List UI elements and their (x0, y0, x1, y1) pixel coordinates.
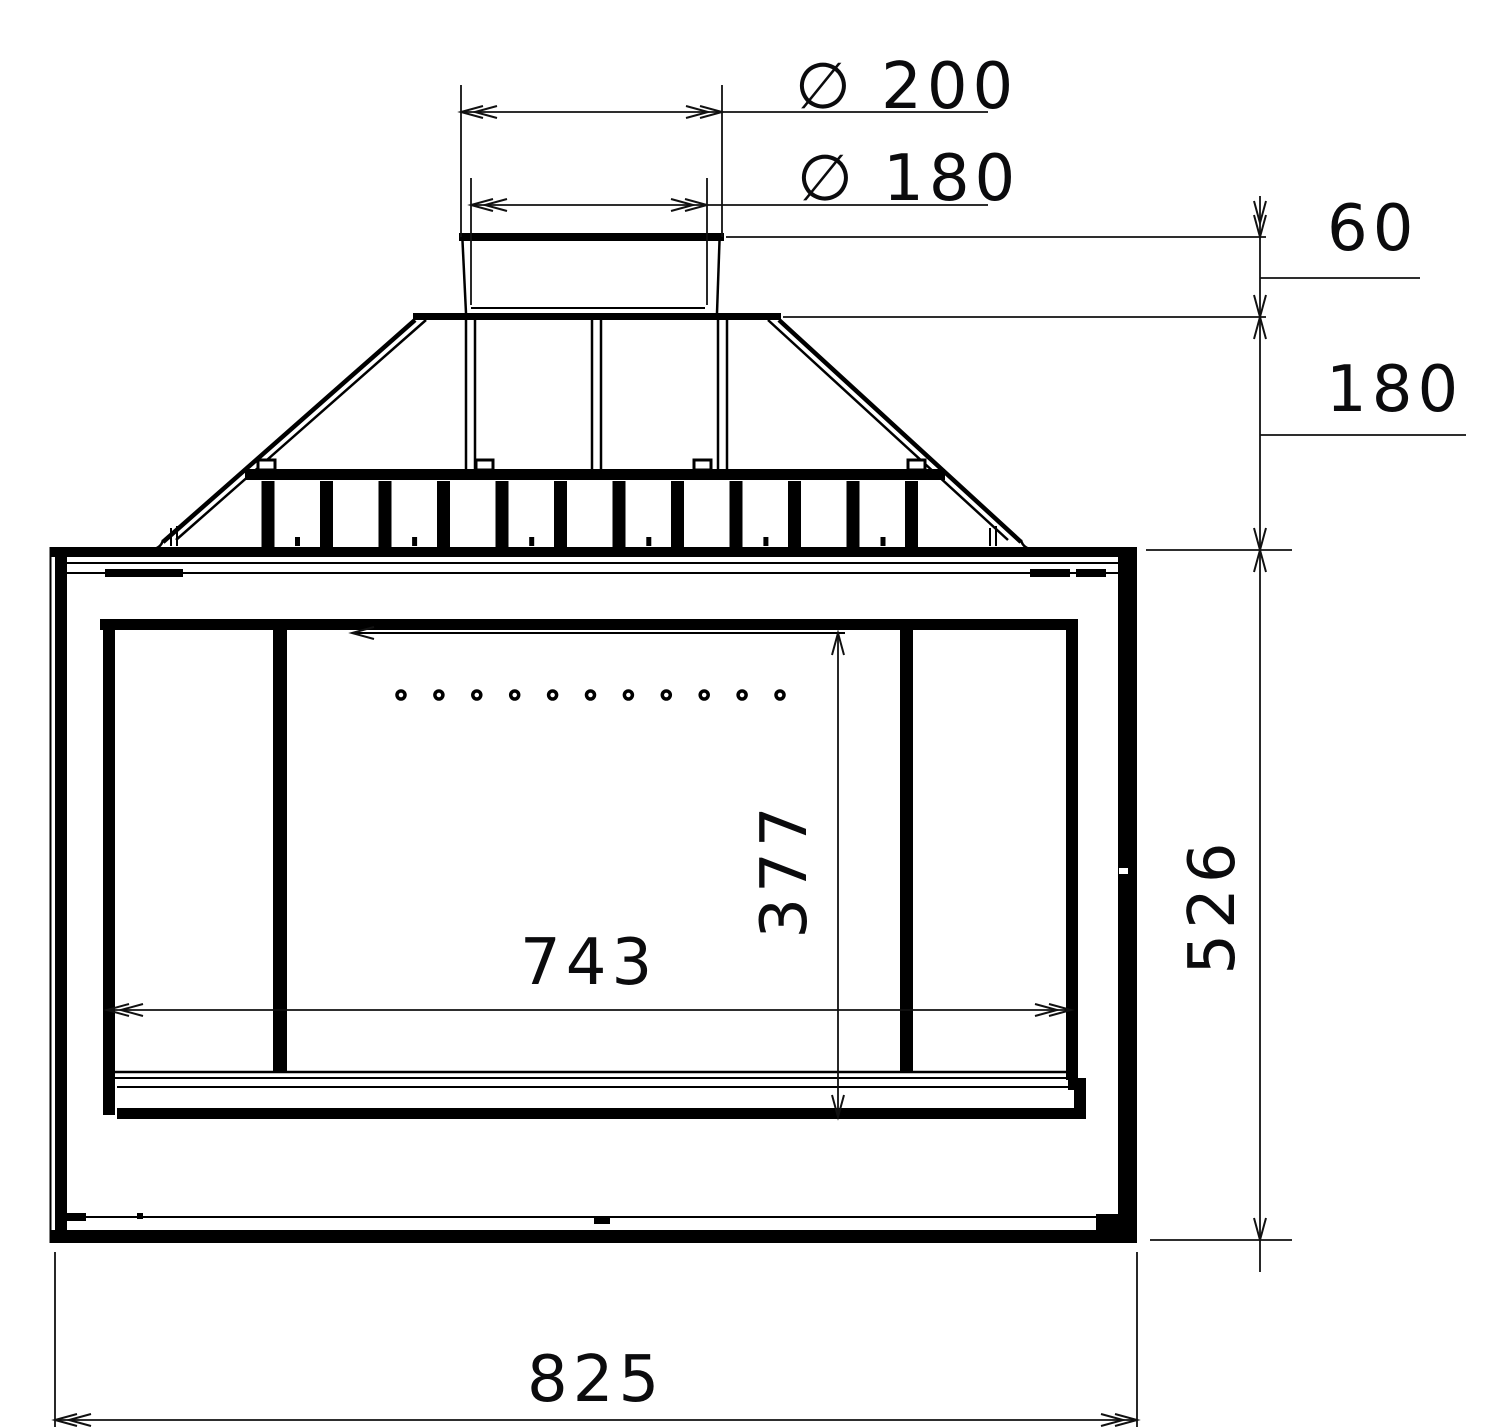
firebox-top-seg-right (1030, 569, 1070, 577)
air-hole (511, 691, 519, 699)
rib (554, 481, 567, 548)
base-tick (646, 537, 651, 546)
hood-top-edge (413, 313, 781, 320)
bottom-left-tick (137, 1213, 143, 1219)
convection-ribs (262, 481, 919, 548)
dim-label-dia200: ∅ 200 (795, 50, 1018, 124)
dim-label-60: 60 (1327, 192, 1418, 266)
air-holes (397, 691, 784, 699)
dimension-glass-height: 377 (748, 633, 844, 1117)
bottom-mid-tick (594, 1216, 610, 1224)
rib (847, 481, 860, 548)
dim-label-743: 743 (520, 926, 657, 1000)
bottom-right-block (1096, 1214, 1133, 1240)
technical-drawing: ∅ 200 ∅ 180 (0, 0, 1500, 1427)
base-tick (295, 537, 300, 546)
air-hole (624, 691, 632, 699)
collar-left-side (463, 241, 467, 313)
sill-left-step (107, 1080, 112, 1110)
door-window (100, 619, 1086, 1119)
base-tick (881, 537, 886, 546)
hood-left-slope-outer (163, 320, 415, 542)
air-hole (397, 691, 405, 699)
window-right-bar (1066, 630, 1078, 1080)
rib (671, 481, 684, 548)
dim-label-526: 526 (1176, 837, 1250, 974)
dimension-glass-width: 743 (107, 926, 1071, 1016)
rib (262, 481, 275, 548)
rib (437, 481, 450, 548)
firebox-right-wall (1118, 547, 1137, 1243)
window-top-bar (100, 619, 1078, 630)
dimensions: ∅ 200 ∅ 180 (55, 50, 1466, 1427)
rib (788, 481, 801, 548)
dim-label-377: 377 (748, 801, 822, 938)
air-hole (738, 691, 746, 699)
rib (613, 481, 626, 548)
rib (905, 481, 918, 548)
air-hole (549, 691, 557, 699)
rib (320, 481, 333, 548)
window-right-mullion (900, 630, 913, 1072)
firebox-bottom-bar (50, 1230, 1137, 1243)
firebox-top-seg-right2 (1076, 569, 1106, 577)
firebox-top-plate (50, 547, 1137, 557)
base-tick (763, 537, 768, 546)
air-hole (587, 691, 595, 699)
air-hole (700, 691, 708, 699)
rib (379, 481, 392, 548)
air-hole (776, 691, 784, 699)
firebox-left-wall (55, 557, 67, 1231)
air-hole (473, 691, 481, 699)
dimension-flue-inner-diameter: ∅ 180 (471, 142, 1020, 305)
dim-label-825: 825 (527, 1343, 664, 1417)
dim-label-180: 180 (1326, 353, 1463, 427)
dim-label-dia180: ∅ 180 (797, 142, 1020, 216)
window-left-mullion (273, 630, 287, 1072)
sill-bar (117, 1108, 1086, 1119)
hood-base-plate (245, 469, 945, 480)
hood-right-slope-inner (768, 320, 1008, 540)
dimension-body-width: 825 (55, 1252, 1137, 1427)
air-hole (662, 691, 670, 699)
door-hinge-slit (1119, 868, 1128, 874)
rib (730, 481, 743, 548)
collar-right-side (717, 241, 720, 313)
collar-top-edge (459, 233, 724, 241)
base-tick (529, 537, 534, 546)
hood-right-slope-outer (779, 320, 1021, 542)
air-hole (435, 691, 443, 699)
flue-duct-lines (466, 320, 727, 469)
rib (496, 481, 509, 548)
base-tick (412, 537, 417, 546)
bottom-left-seg (66, 1213, 86, 1221)
smoke-hood (149, 313, 1035, 550)
firebox-body (50, 547, 1137, 1243)
firebox-top-seg-left (105, 569, 183, 577)
flue-collar (459, 233, 724, 313)
window-left-bar (103, 630, 115, 1115)
